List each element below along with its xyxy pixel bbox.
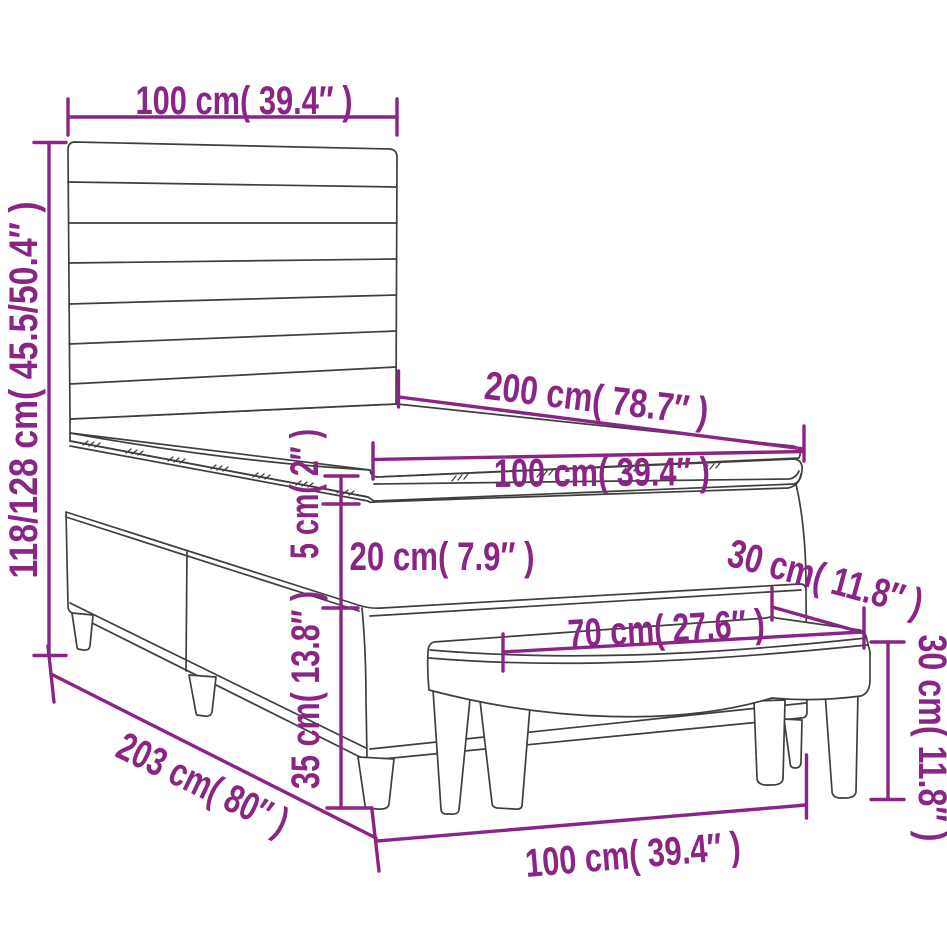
svg-text:100 cm( 39.4″ ): 100 cm( 39.4″ ) [136,79,353,123]
svg-text:100 cm( 39.4″ ): 100 cm( 39.4″ ) [494,450,710,496]
svg-text:30 cm( 11.8″ ): 30 cm( 11.8″ ) [910,635,947,842]
svg-text:20 cm( 7.9″ ): 20 cm( 7.9″ ) [350,535,535,579]
svg-text:35 cm( 13.8″ ): 35 cm( 13.8″ ) [284,591,328,789]
svg-text:118/128 cm( 45.5/50.4″ ): 118/128 cm( 45.5/50.4″ ) [2,202,46,579]
svg-text:5 cm( 2″ ): 5 cm( 2″ ) [283,429,327,559]
